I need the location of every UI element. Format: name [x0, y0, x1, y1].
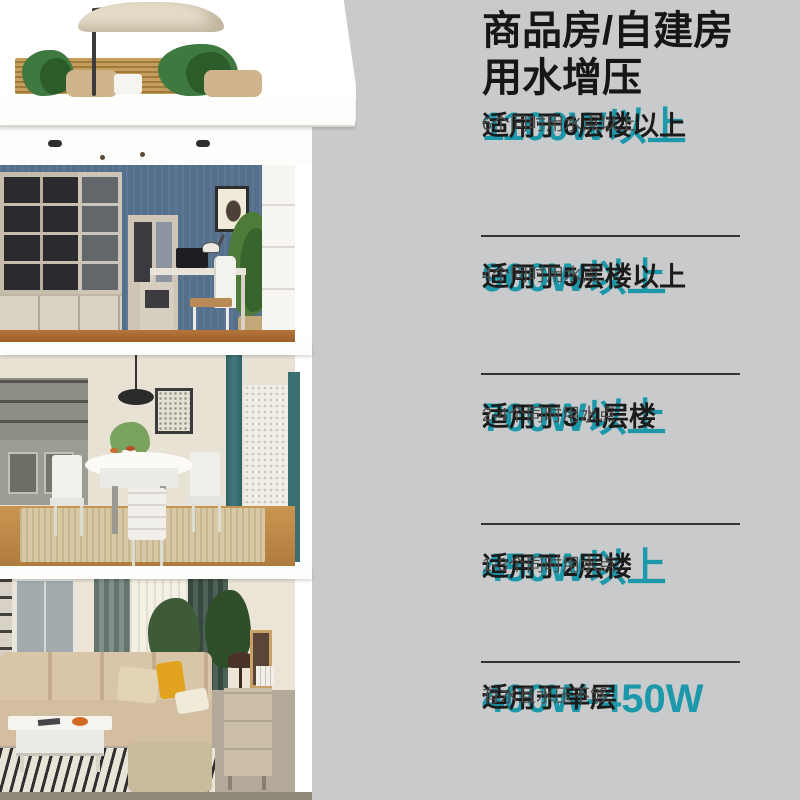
terrace-lounge-chair-right: [204, 70, 262, 97]
dining-chair-leg: [218, 504, 221, 532]
dining-sideboard-shelves: [0, 378, 88, 440]
side-table-lamp-stem: [239, 668, 242, 688]
desk-lamp-shade: [202, 242, 220, 253]
floor-slab-terrace: [0, 97, 355, 127]
ceiling-spotlight: [48, 140, 62, 147]
ceiling-downlight: [140, 152, 145, 157]
points-label: 4个同时用水点: [482, 265, 600, 285]
study-chair-seat: [190, 298, 232, 307]
dining-chair-back-front: [128, 488, 166, 540]
dining-chair-seat: [188, 496, 224, 504]
points-label: 6个同时用水点以上: [482, 114, 636, 134]
pendant-lamp-cord: [135, 355, 137, 391]
points-label: 有水且水压不够: [482, 686, 608, 706]
table-fruit: [110, 448, 118, 453]
coffee-table-fruit-bowl: [72, 717, 88, 726]
dining-table-skirt: [100, 468, 178, 488]
house-cutaway-photo: [0, 0, 312, 800]
dining-chair-leg: [192, 504, 195, 532]
title-line-2: 用水增压: [482, 55, 642, 102]
dining-table-leg: [112, 486, 118, 534]
dining-chair-leg: [54, 506, 57, 536]
sideboard-leg: [228, 776, 232, 790]
desk-drawer-front: [145, 290, 169, 308]
ceiling-spotlight: [196, 140, 210, 147]
divider: [481, 661, 740, 663]
title-line-1: 商品房/自建房: [482, 8, 733, 55]
dining-chair-seat: [50, 498, 84, 506]
sideboard-leg: [262, 776, 266, 790]
study-ceiling: [0, 127, 312, 165]
floor-edge-shadow: [0, 792, 312, 800]
page-title: 商品房/自建房 用水增压: [482, 8, 800, 55]
dining-chair-back: [190, 452, 220, 500]
floor-slab-study: [0, 342, 312, 355]
sideboard-books: [256, 666, 274, 686]
terrace-side-table: [114, 74, 142, 94]
coffee-table-body: [16, 730, 104, 756]
ceiling-downlight: [100, 155, 105, 160]
dining-chair-back: [52, 455, 82, 503]
sofa-chaise: [128, 742, 212, 792]
table-fruit: [126, 446, 135, 451]
dining-chair-leg: [80, 506, 83, 536]
study-right-wall-panel: [262, 165, 295, 330]
dining-wall-art: [155, 388, 193, 434]
dining-sideboard-glass-door: [8, 452, 38, 494]
study-wood-floor: [0, 330, 295, 342]
divider: [481, 373, 740, 375]
divider: [481, 523, 740, 525]
product-infographic: 商品房/自建房 用水增压 1100W以上 适用于6层楼以上 6个同时用水点以上 …: [0, 0, 800, 800]
floor-slab-dining: [0, 566, 312, 579]
room-rooftop-terrace: [0, 0, 312, 97]
desk-leg: [241, 275, 245, 333]
points-label: 2-4个同时用水点: [482, 405, 616, 425]
sofa-pillow-beige: [116, 666, 159, 704]
study-bookcase-lower-cabinet: [0, 294, 122, 334]
coffee-table-leg: [20, 756, 24, 772]
living-sideboard: [224, 688, 272, 776]
pendant-lamp-shade: [118, 389, 154, 405]
divider: [481, 235, 740, 237]
coffee-table-leg: [96, 756, 100, 772]
window-mullion: [44, 580, 46, 656]
study-bookcase-glass-door: [78, 172, 122, 294]
points-label: 1-3个同时用水点: [482, 555, 616, 575]
